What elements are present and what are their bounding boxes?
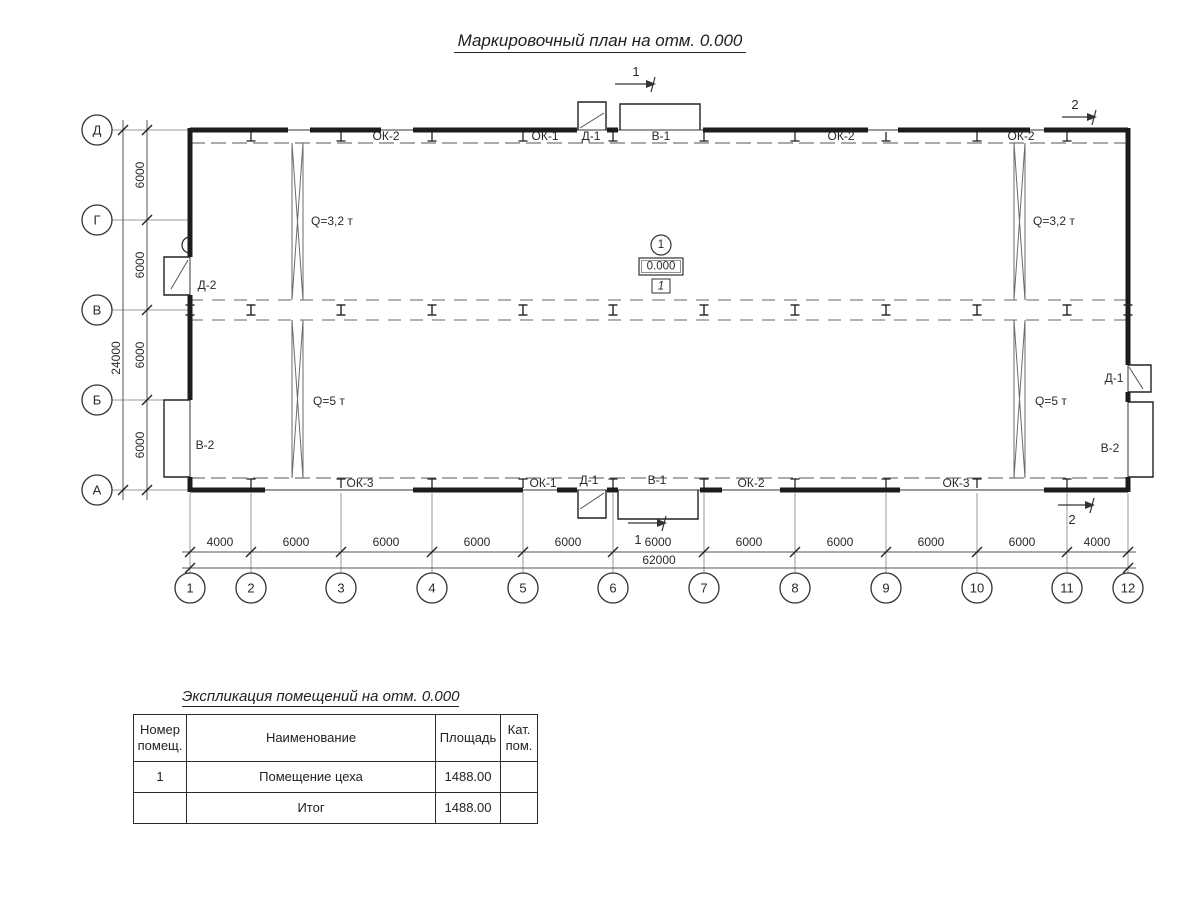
cell-room-area: 1488.00: [436, 762, 501, 793]
wall-opening-labels: ОК-2 ОК-1 Д-1 В-1 ОК-2 ОК-2 ОК-3 ОК-1 Д-…: [196, 129, 1124, 490]
door-leaves: [171, 113, 1143, 509]
cell-total-number: [134, 793, 187, 824]
table-row: 1 Помещение цеха 1488.00: [134, 762, 538, 793]
axis-row-G: Г: [93, 213, 100, 228]
section-2-number: 2: [1071, 97, 1078, 112]
dim-bottom-4: 6000: [464, 535, 491, 549]
section-2-number-b: 2: [1068, 512, 1075, 527]
top-label-ok1: ОК-1: [532, 129, 559, 143]
room-explication: Экспликация помещений на отм. 0.000 Номе…: [133, 688, 538, 824]
room-number: 1: [658, 239, 664, 251]
room-index: 1: [658, 281, 664, 293]
top-label-ok2-c: ОК-2: [1008, 129, 1035, 143]
dim-left-3: 6000: [133, 341, 147, 368]
side-walls: [190, 128, 1128, 492]
section-mark-1-top: 1: [615, 64, 656, 92]
header-name: Наименование: [187, 715, 436, 762]
cell-total-label: Итог: [187, 793, 436, 824]
left-label-d2: Д-2: [198, 278, 217, 292]
crane-label-upper-left: Q=3,2 т: [311, 214, 353, 228]
dim-bottom-9: 6000: [918, 535, 945, 549]
axis-col-5: 5: [519, 581, 526, 596]
explication-title-text: Экспликация помещений на отм. 0.000: [182, 688, 459, 707]
bottom-label-ok1: ОК-1: [530, 476, 557, 490]
cell-room-cat: [501, 762, 538, 793]
top-label-ok2-b: ОК-2: [828, 129, 855, 143]
axis-row-markers: Д Г В Б А: [82, 115, 112, 505]
dim-bottom-11: 4000: [1084, 535, 1111, 549]
axis-row-A: А: [93, 483, 102, 498]
axis-col-2: 2: [247, 581, 254, 596]
table-header-row: Номер помещ. Наименование Площадь Кат. п…: [134, 715, 538, 762]
left-label-v2: В-2: [196, 438, 215, 452]
dim-bottom-total: 62000: [642, 553, 676, 567]
grid-extension-lines: [112, 130, 1128, 573]
crane-label-upper-right: Q=3,2 т: [1033, 214, 1075, 228]
bottom-label-ok3-b: ОК-3: [943, 476, 970, 490]
axis-col-8: 8: [791, 581, 798, 596]
axis-col-4: 4: [428, 581, 435, 596]
bottom-label-ok3-a: ОК-3: [347, 476, 374, 490]
right-label-v2: В-2: [1101, 441, 1120, 455]
explication-title: Экспликация помещений на отм. 0.000: [182, 688, 538, 705]
dim-bottom-1: 4000: [207, 535, 234, 549]
section-1-number-b: 1: [634, 532, 641, 547]
axis-col-9: 9: [882, 581, 889, 596]
dim-bottom-7: 6000: [736, 535, 763, 549]
header-area: Площадь: [436, 715, 501, 762]
axis-row-V: В: [93, 303, 102, 318]
top-label-v1: В-1: [652, 129, 671, 143]
room-elevation: 0.000: [647, 261, 676, 273]
axis-col-7: 7: [700, 581, 707, 596]
axis-col-11: 11: [1060, 581, 1074, 596]
dim-left-1: 6000: [133, 161, 147, 188]
header-room-number: Номер помещ.: [134, 715, 187, 762]
section-mark-2-bottom: 2: [1058, 498, 1095, 527]
explication-table: Номер помещ. Наименование Площадь Кат. п…: [133, 714, 538, 824]
axis-row-B: Б: [93, 393, 102, 408]
dim-bottom-3: 6000: [373, 535, 400, 549]
room-marker: 1 0.000 1: [639, 235, 683, 293]
cell-total-area: 1488.00: [436, 793, 501, 824]
building-walls: [190, 128, 1128, 492]
axis-column-markers: 1 2 3 4 5 6 7 8 9 10 11 12: [175, 573, 1143, 603]
column-symbols: [186, 132, 1133, 488]
axis-col-10: 10: [970, 581, 984, 596]
cell-room-name: Помещение цеха: [187, 762, 436, 793]
top-label-ok2-a: ОК-2: [373, 129, 400, 143]
header-category: Кат. пом.: [501, 715, 538, 762]
dimensions-bottom: 4000 6000 6000 6000 6000 6000 6000 6000 …: [182, 535, 1136, 573]
bottom-label-v1: В-1: [648, 473, 667, 487]
bottom-label-d1: Д-1: [580, 473, 599, 487]
axis-col-1: 1: [186, 581, 193, 596]
table-row-total: Итог 1488.00: [134, 793, 538, 824]
dim-bottom-10: 6000: [1009, 535, 1036, 549]
dim-bottom-8: 6000: [827, 535, 854, 549]
axis-col-12: 12: [1121, 581, 1135, 596]
dim-left-4: 6000: [133, 431, 147, 458]
crane-rails: [292, 143, 1025, 478]
axis-col-6: 6: [609, 581, 616, 596]
crane-label-lower-right: Q=5 т: [1035, 394, 1067, 408]
crane-label-lower-left: Q=5 т: [313, 394, 345, 408]
section-mark-2-top: 2: [1062, 97, 1097, 125]
cell-total-cat: [501, 793, 538, 824]
dim-left-2: 6000: [133, 251, 147, 278]
crane-capacity-labels: Q=3,2 т Q=3,2 т Q=5 т Q=5 т: [311, 214, 1075, 408]
dim-bottom-2: 6000: [283, 535, 310, 549]
axis-col-3: 3: [337, 581, 344, 596]
dim-bottom-5: 6000: [555, 535, 582, 549]
dim-left-total: 24000: [109, 341, 123, 375]
right-label-d1: Д-1: [1105, 371, 1124, 385]
vestibules: [164, 102, 1153, 519]
marking-plan-sheet: Маркировочный план на отм. 0.000: [0, 0, 1200, 900]
cell-room-number: 1: [134, 762, 187, 793]
axis-row-D: Д: [93, 123, 102, 138]
bottom-label-ok2: ОК-2: [738, 476, 765, 490]
section-1-number: 1: [632, 64, 639, 79]
top-label-d1: Д-1: [582, 129, 601, 143]
dim-bottom-6: 6000: [645, 535, 672, 549]
